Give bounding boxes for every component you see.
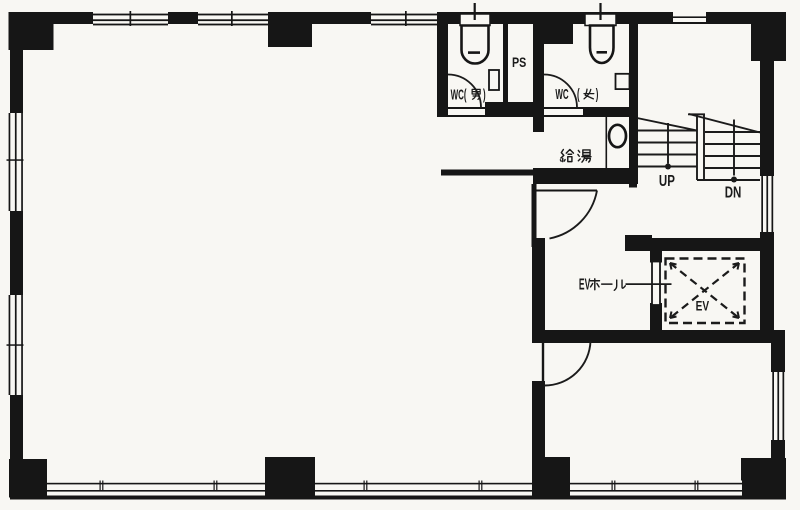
svg-text:DN: DN <box>725 182 742 200</box>
svg-text:EV: EV <box>579 276 591 293</box>
svg-text:(: ( <box>577 87 580 103</box>
svg-text:WC: WC <box>555 87 569 103</box>
svg-text:UP: UP <box>659 171 675 189</box>
svg-text:WC(: WC( <box>451 87 467 103</box>
svg-text:PS: PS <box>512 55 526 70</box>
svg-text:EV: EV <box>696 298 710 314</box>
svg-text:): ) <box>596 87 599 103</box>
svg-text:): ) <box>483 87 486 103</box>
